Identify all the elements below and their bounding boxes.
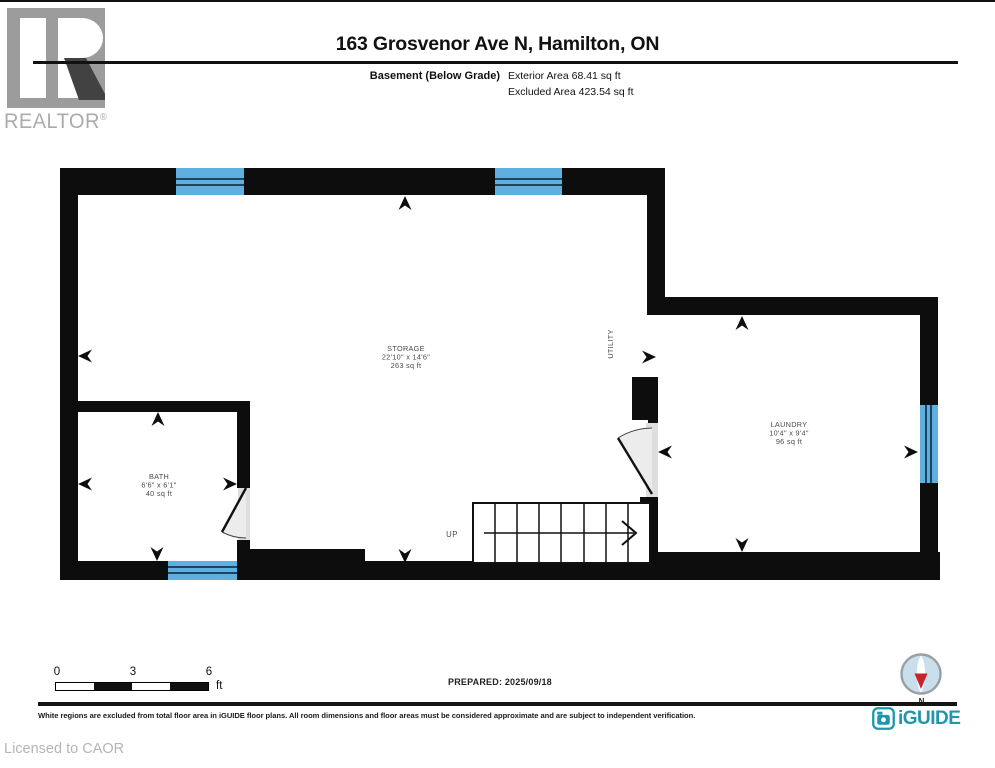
scale-tick-0: 0: [49, 666, 65, 678]
scale-unit: ft: [216, 680, 222, 692]
wall-segment: [658, 552, 940, 561]
iguide-logo: iGUIDE: [872, 707, 960, 730]
stair-door: [618, 428, 652, 494]
bath-door: [222, 488, 246, 538]
disclaimer-text: White regions are excluded from total fl…: [38, 711, 848, 720]
iguide-wordmark: iGUIDE: [898, 708, 960, 730]
measure-arrow: [399, 196, 412, 210]
wall-segment: [237, 540, 250, 561]
measure-arrow: [78, 350, 92, 363]
scale-bar: [55, 682, 209, 691]
wall-segment: [632, 377, 658, 420]
window-top-1: [176, 168, 244, 195]
prepared-date: PREPARED: 2025/09/18: [448, 677, 552, 687]
scale-tick-3: 3: [125, 666, 141, 678]
room-area-bath: 40 sq ft: [146, 489, 172, 498]
floorplan-page: STORAGE 22'10" x 14'6" 263 sq ft BATH 6'…: [0, 0, 995, 768]
compass-icon: [899, 652, 943, 696]
floor-label: Basement (Below Grade): [250, 70, 500, 82]
measure-arrow: [399, 549, 412, 563]
wall-segment: [237, 401, 250, 488]
header-divider: [33, 61, 958, 64]
measure-arrow: [904, 446, 918, 459]
measure-arrow: [78, 478, 92, 491]
room-area-laundry: 96 sq ft: [776, 437, 802, 446]
excluded-area: Excluded Area 423.54 sq ft: [508, 86, 634, 98]
window-bottom: [168, 561, 237, 580]
measure-arrow: [151, 547, 164, 561]
room-name-utility: UTILITY: [606, 329, 615, 358]
scale-segment: [94, 683, 132, 690]
scale-tick-6: 6: [201, 666, 217, 678]
page-title: 163 Grosvenor Ave N, Hamilton, ON: [0, 33, 995, 56]
measure-arrow: [658, 446, 672, 459]
iguide-icon: [872, 707, 895, 730]
wall-segment: [647, 297, 938, 315]
measure-arrow: [642, 351, 656, 364]
wall-segment: [60, 168, 78, 580]
window-right: [920, 405, 938, 483]
scale-segment: [56, 683, 94, 690]
footer-divider: [38, 702, 957, 706]
wall-segment: [237, 549, 365, 561]
realtor-wordmark: REALTOR®: [4, 109, 107, 134]
license-text: Licensed to CAOR: [4, 741, 124, 757]
measure-arrow: [152, 412, 165, 426]
registered-trademark: ®: [100, 112, 107, 123]
wall-segment: [78, 401, 250, 412]
scale-segment: [132, 683, 170, 690]
exterior-area: Exterior Area 68.41 sq ft: [508, 70, 621, 82]
room-area-storage: 263 sq ft: [391, 361, 422, 370]
compass: N: [896, 652, 946, 706]
measure-arrow: [736, 316, 749, 330]
measure-arrow: [223, 478, 237, 491]
realtor-logo-mark: [7, 8, 105, 108]
wall-segment: [647, 168, 665, 315]
measure-arrow: [736, 538, 749, 552]
window-top-2: [495, 168, 562, 195]
wall-segment: [60, 168, 665, 195]
stairs-up-label: UP: [446, 530, 458, 539]
staircase: [473, 503, 650, 563]
scale-segment: [170, 683, 208, 690]
floorplan-drawing: STORAGE 22'10" x 14'6" 263 sq ft BATH 6'…: [0, 0, 995, 768]
